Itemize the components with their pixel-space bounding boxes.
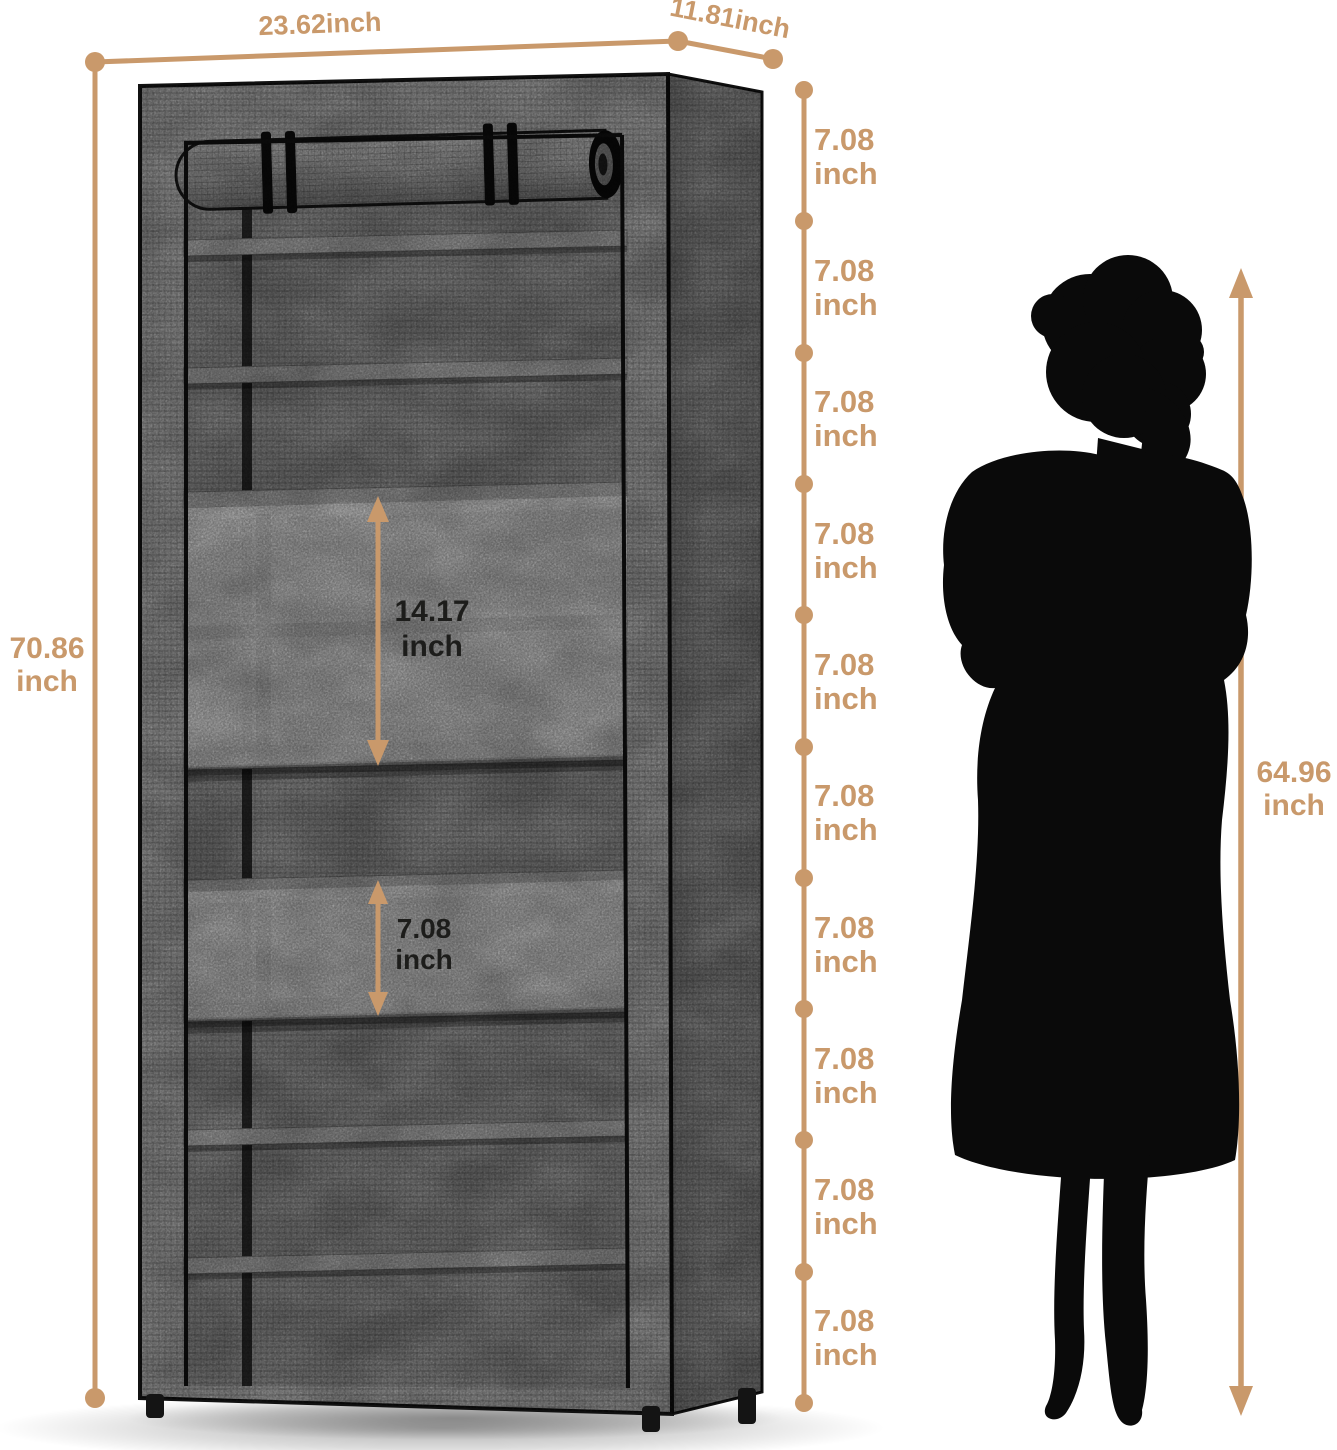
tier-height-label: 7.08inch	[814, 385, 924, 453]
double-shelf-value: 14.17	[377, 594, 487, 629]
tier-height-label: 7.08inch	[814, 254, 924, 322]
tier-height-label: 7.08inch	[814, 911, 924, 979]
height-dimension-label: 70.86 inch	[2, 632, 92, 698]
person-height-label: 64.96 inch	[1248, 756, 1337, 822]
width-dimension-line	[95, 41, 678, 62]
rack-foot	[642, 1406, 660, 1432]
single-shelf-unit: inch	[374, 944, 474, 975]
diagram-artwork	[0, 0, 1337, 1450]
person-silhouette	[943, 255, 1252, 1426]
tier-height-label: 7.08inch	[814, 1304, 924, 1372]
tier-height-label: 7.08inch	[814, 517, 924, 585]
tier-height-label: 7.08inch	[814, 123, 924, 191]
depth-dimension-line	[678, 41, 773, 59]
single-shelf-height-label: 7.08 inch	[374, 913, 474, 975]
fabric-grain-texture	[130, 60, 780, 1430]
rack-foot	[146, 1394, 164, 1418]
tier-height-label: 7.08inch	[814, 648, 924, 716]
person-height-value: 64.96	[1248, 756, 1337, 789]
single-shelf-value: 7.08	[374, 913, 474, 944]
double-shelf-height-label: 14.17 inch	[377, 594, 487, 664]
shoe-rack-illustration	[130, 60, 780, 1432]
person-height-unit: inch	[1248, 789, 1337, 822]
tier-height-label: 7.08inch	[814, 779, 924, 847]
height-value: 70.86	[2, 632, 92, 665]
double-shelf-unit: inch	[377, 629, 487, 664]
height-unit: inch	[2, 665, 92, 698]
product-dimension-diagram: 23.62inch 11.81inch 70.86 inch 7.08inch …	[0, 0, 1337, 1450]
tier-height-label: 7.08inch	[814, 1042, 924, 1110]
rack-foot	[738, 1388, 756, 1424]
tier-height-label: 7.08inch	[814, 1173, 924, 1241]
